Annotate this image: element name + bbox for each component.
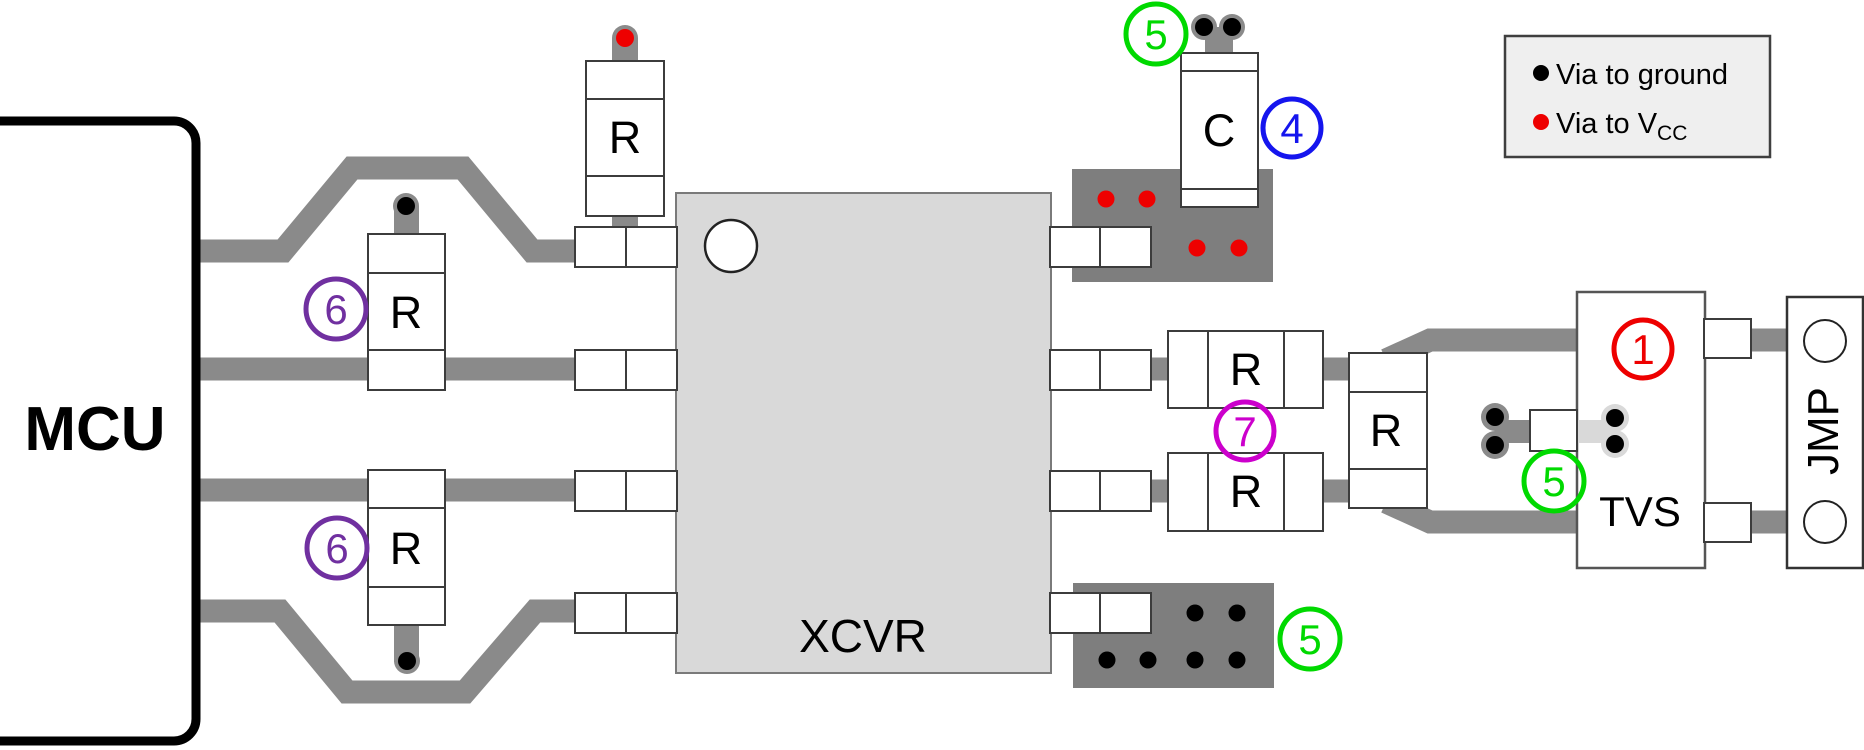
ground-via bbox=[1486, 436, 1504, 454]
mcu-label: MCU bbox=[24, 395, 165, 464]
pad bbox=[626, 471, 677, 511]
ground-via-legend-icon bbox=[1533, 65, 1549, 81]
resistor-pad bbox=[1349, 353, 1427, 392]
pad bbox=[1100, 593, 1151, 633]
resistor-pad bbox=[368, 350, 445, 390]
callout-number: 6 bbox=[325, 525, 348, 572]
resistor-pad bbox=[1349, 469, 1427, 508]
callout-number: 5 bbox=[1144, 11, 1167, 58]
legend-label-vcc-main: Via to V bbox=[1556, 108, 1658, 140]
resistor-label: R bbox=[390, 287, 423, 338]
xcvr-block: XCVR bbox=[676, 193, 1051, 673]
xcvr-right-pads bbox=[1050, 227, 1151, 633]
pcb-layout-diagram: MCU XCVR R R bbox=[0, 0, 1864, 750]
pad bbox=[626, 350, 677, 390]
xcvr-pin1-marker bbox=[705, 220, 757, 272]
callout-6-top-resistor: 6 bbox=[306, 279, 366, 339]
ground-via bbox=[1486, 408, 1504, 426]
xcvr-left-pads bbox=[575, 227, 677, 633]
resistor-pad bbox=[586, 61, 664, 99]
termination-resistor-upper: R bbox=[1168, 331, 1323, 408]
ground-via bbox=[1606, 435, 1624, 453]
tvs-right-pad-top bbox=[1704, 319, 1751, 358]
capacitor-label: C bbox=[1203, 105, 1236, 156]
capacitor-pad bbox=[1181, 189, 1258, 207]
vcc-via bbox=[1139, 191, 1156, 208]
jumper-block: JMP bbox=[1787, 297, 1863, 568]
callout-5-tvs: 5 bbox=[1524, 451, 1584, 511]
vcc-via bbox=[1231, 240, 1248, 257]
callout-number: 1 bbox=[1631, 326, 1654, 373]
callout-5-ground-plane: 5 bbox=[1280, 609, 1340, 669]
resistor-pad bbox=[1284, 453, 1323, 531]
vcc-via bbox=[616, 29, 634, 47]
capacitor-pad bbox=[1181, 53, 1258, 71]
ground-via bbox=[397, 197, 415, 215]
ground-via bbox=[1229, 605, 1246, 622]
mcu-block: MCU bbox=[0, 121, 196, 741]
resistor-pad bbox=[368, 470, 445, 508]
pad bbox=[1050, 593, 1100, 633]
pad bbox=[575, 471, 626, 511]
resistor-pad bbox=[368, 587, 445, 625]
termination-resistor-lower: R bbox=[1168, 453, 1323, 531]
vcc-via bbox=[1098, 191, 1115, 208]
callout-6-bottom-resistor: 6 bbox=[307, 518, 367, 578]
series-resistor-top-left: R bbox=[368, 234, 445, 390]
ground-via bbox=[1099, 652, 1116, 669]
tvs-right-pad-bottom bbox=[1704, 503, 1751, 542]
resistor-pad bbox=[368, 234, 445, 273]
pcb-diagram-svg: MCU XCVR R R bbox=[0, 0, 1864, 750]
ground-via bbox=[1223, 18, 1241, 36]
callout-4-capacitor: 4 bbox=[1263, 99, 1321, 157]
resistor-label: R bbox=[1230, 466, 1263, 517]
ground-via bbox=[1187, 652, 1204, 669]
split-resistor-vertical: R bbox=[1349, 353, 1427, 508]
pull-resistor: R bbox=[586, 61, 664, 216]
ground-via bbox=[1187, 605, 1204, 622]
jmp-hole-top bbox=[1804, 320, 1846, 362]
resistor-label: R bbox=[1230, 344, 1263, 395]
tvs-label: TVS bbox=[1599, 488, 1681, 535]
legend: Via to ground Via to VCC bbox=[1505, 36, 1770, 157]
jmp-hole-bottom bbox=[1804, 501, 1846, 543]
pad bbox=[626, 593, 677, 633]
series-resistor-bottom-left: R bbox=[368, 470, 445, 625]
resistor-pad bbox=[1168, 453, 1208, 531]
resistor-label: R bbox=[609, 112, 642, 163]
pad bbox=[1050, 471, 1100, 511]
decoupling-capacitor: C bbox=[1181, 53, 1258, 207]
tvs-left-pad bbox=[1530, 410, 1577, 451]
callout-number: 6 bbox=[324, 286, 347, 333]
pad bbox=[1100, 471, 1151, 511]
resistor-pad bbox=[1168, 331, 1208, 408]
ground-via bbox=[1229, 652, 1246, 669]
pad bbox=[1100, 227, 1151, 267]
ground-via bbox=[1140, 652, 1157, 669]
vcc-via bbox=[1189, 240, 1206, 257]
ground-via bbox=[398, 652, 416, 670]
ground-via bbox=[1195, 18, 1213, 36]
pad bbox=[626, 227, 677, 267]
callout-number: 5 bbox=[1298, 616, 1321, 663]
jmp-label: JMP bbox=[1799, 387, 1848, 475]
pad bbox=[575, 227, 626, 267]
resistor-pad bbox=[1284, 331, 1323, 408]
pad bbox=[1050, 227, 1100, 267]
pad bbox=[575, 593, 626, 633]
pad bbox=[575, 350, 626, 390]
resistor-pad bbox=[586, 176, 664, 216]
legend-label-ground: Via to ground bbox=[1556, 59, 1728, 91]
vcc-via-legend-icon bbox=[1533, 114, 1549, 130]
pad bbox=[1100, 350, 1151, 390]
callout-5-capacitor: 5 bbox=[1126, 4, 1186, 64]
xcvr-label: XCVR bbox=[799, 610, 927, 662]
pad bbox=[1050, 350, 1100, 390]
callout-number: 7 bbox=[1233, 408, 1256, 455]
callout-number: 5 bbox=[1542, 458, 1565, 505]
callout-number: 4 bbox=[1280, 105, 1303, 152]
resistor-label: R bbox=[390, 523, 423, 574]
resistor-label: R bbox=[1370, 405, 1403, 456]
callout-7-termination: 7 bbox=[1216, 402, 1274, 460]
legend-label-vcc-subscript: CC bbox=[1657, 122, 1687, 145]
ground-via bbox=[1606, 409, 1624, 427]
